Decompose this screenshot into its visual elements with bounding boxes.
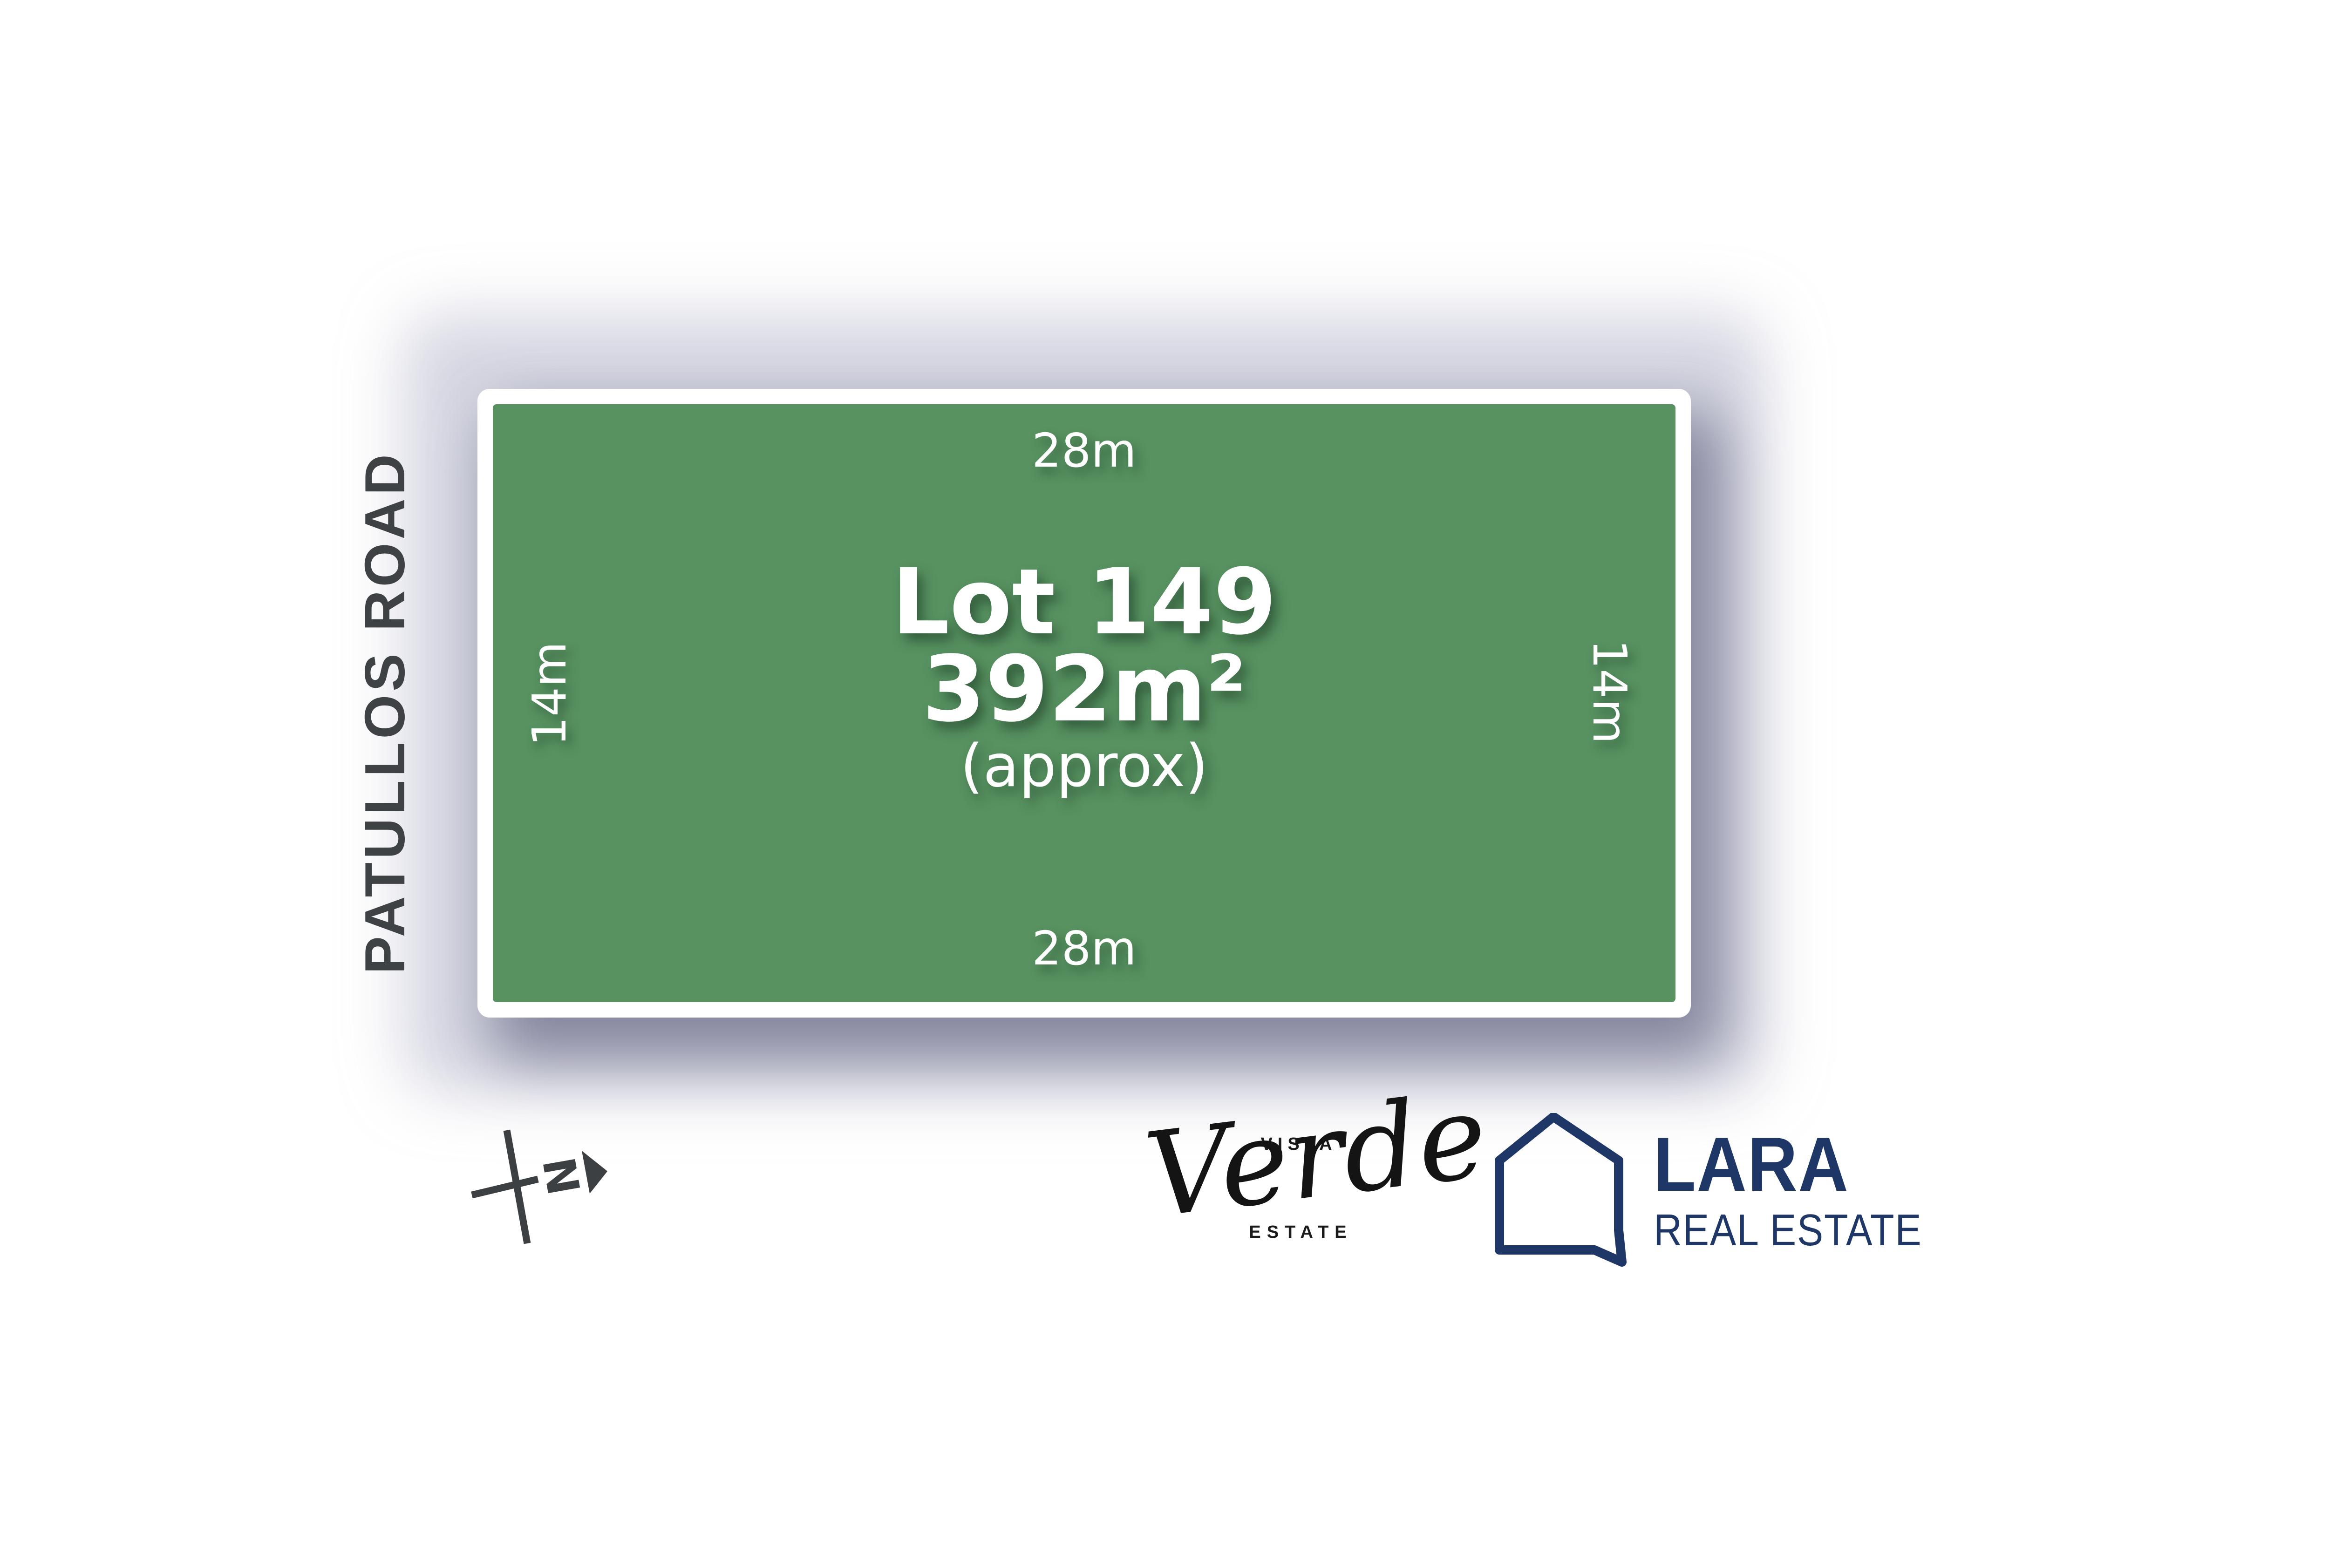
lot-area-size: 392m²	[493, 643, 1675, 736]
lot-number: Lot 149	[493, 556, 1675, 649]
estate-logo-script: Verde	[1138, 1071, 1451, 1246]
dimension-bottom: 28m	[493, 918, 1675, 979]
house-pin-icon	[1492, 1113, 1627, 1267]
north-arrow-icon: N	[456, 1118, 620, 1253]
land-lot-plan: 28m Lot 149 392m² (approx) 28m 14m 14m P…	[0, 0, 2329, 1568]
lot-area-approx: (approx)	[493, 731, 1675, 801]
lot-parcel: 28m Lot 149 392m² (approx) 28m 14m 14m	[493, 404, 1675, 1002]
estate-logo-estate: ESTATE	[1155, 1222, 1440, 1242]
agency-name: LARA	[1654, 1126, 1849, 1203]
road-label: PATULLOS ROAD	[352, 387, 417, 1039]
agency-tagline: REAL ESTATE	[1654, 1208, 1922, 1253]
estate-logo: VISTA Verde ESTATE	[1155, 1085, 1444, 1299]
lot-card: 28m Lot 149 392m² (approx) 28m 14m 14m	[477, 389, 1691, 1018]
agency-logo: LARA REAL ESTATE	[1492, 1113, 1939, 1271]
dimension-top: 28m	[493, 421, 1675, 481]
compass-cross-horizontal	[472, 1179, 538, 1195]
dimension-left: 14m	[519, 610, 580, 778]
compass-north-letter: N	[532, 1154, 589, 1199]
dimension-right: 14m	[1579, 608, 1640, 775]
